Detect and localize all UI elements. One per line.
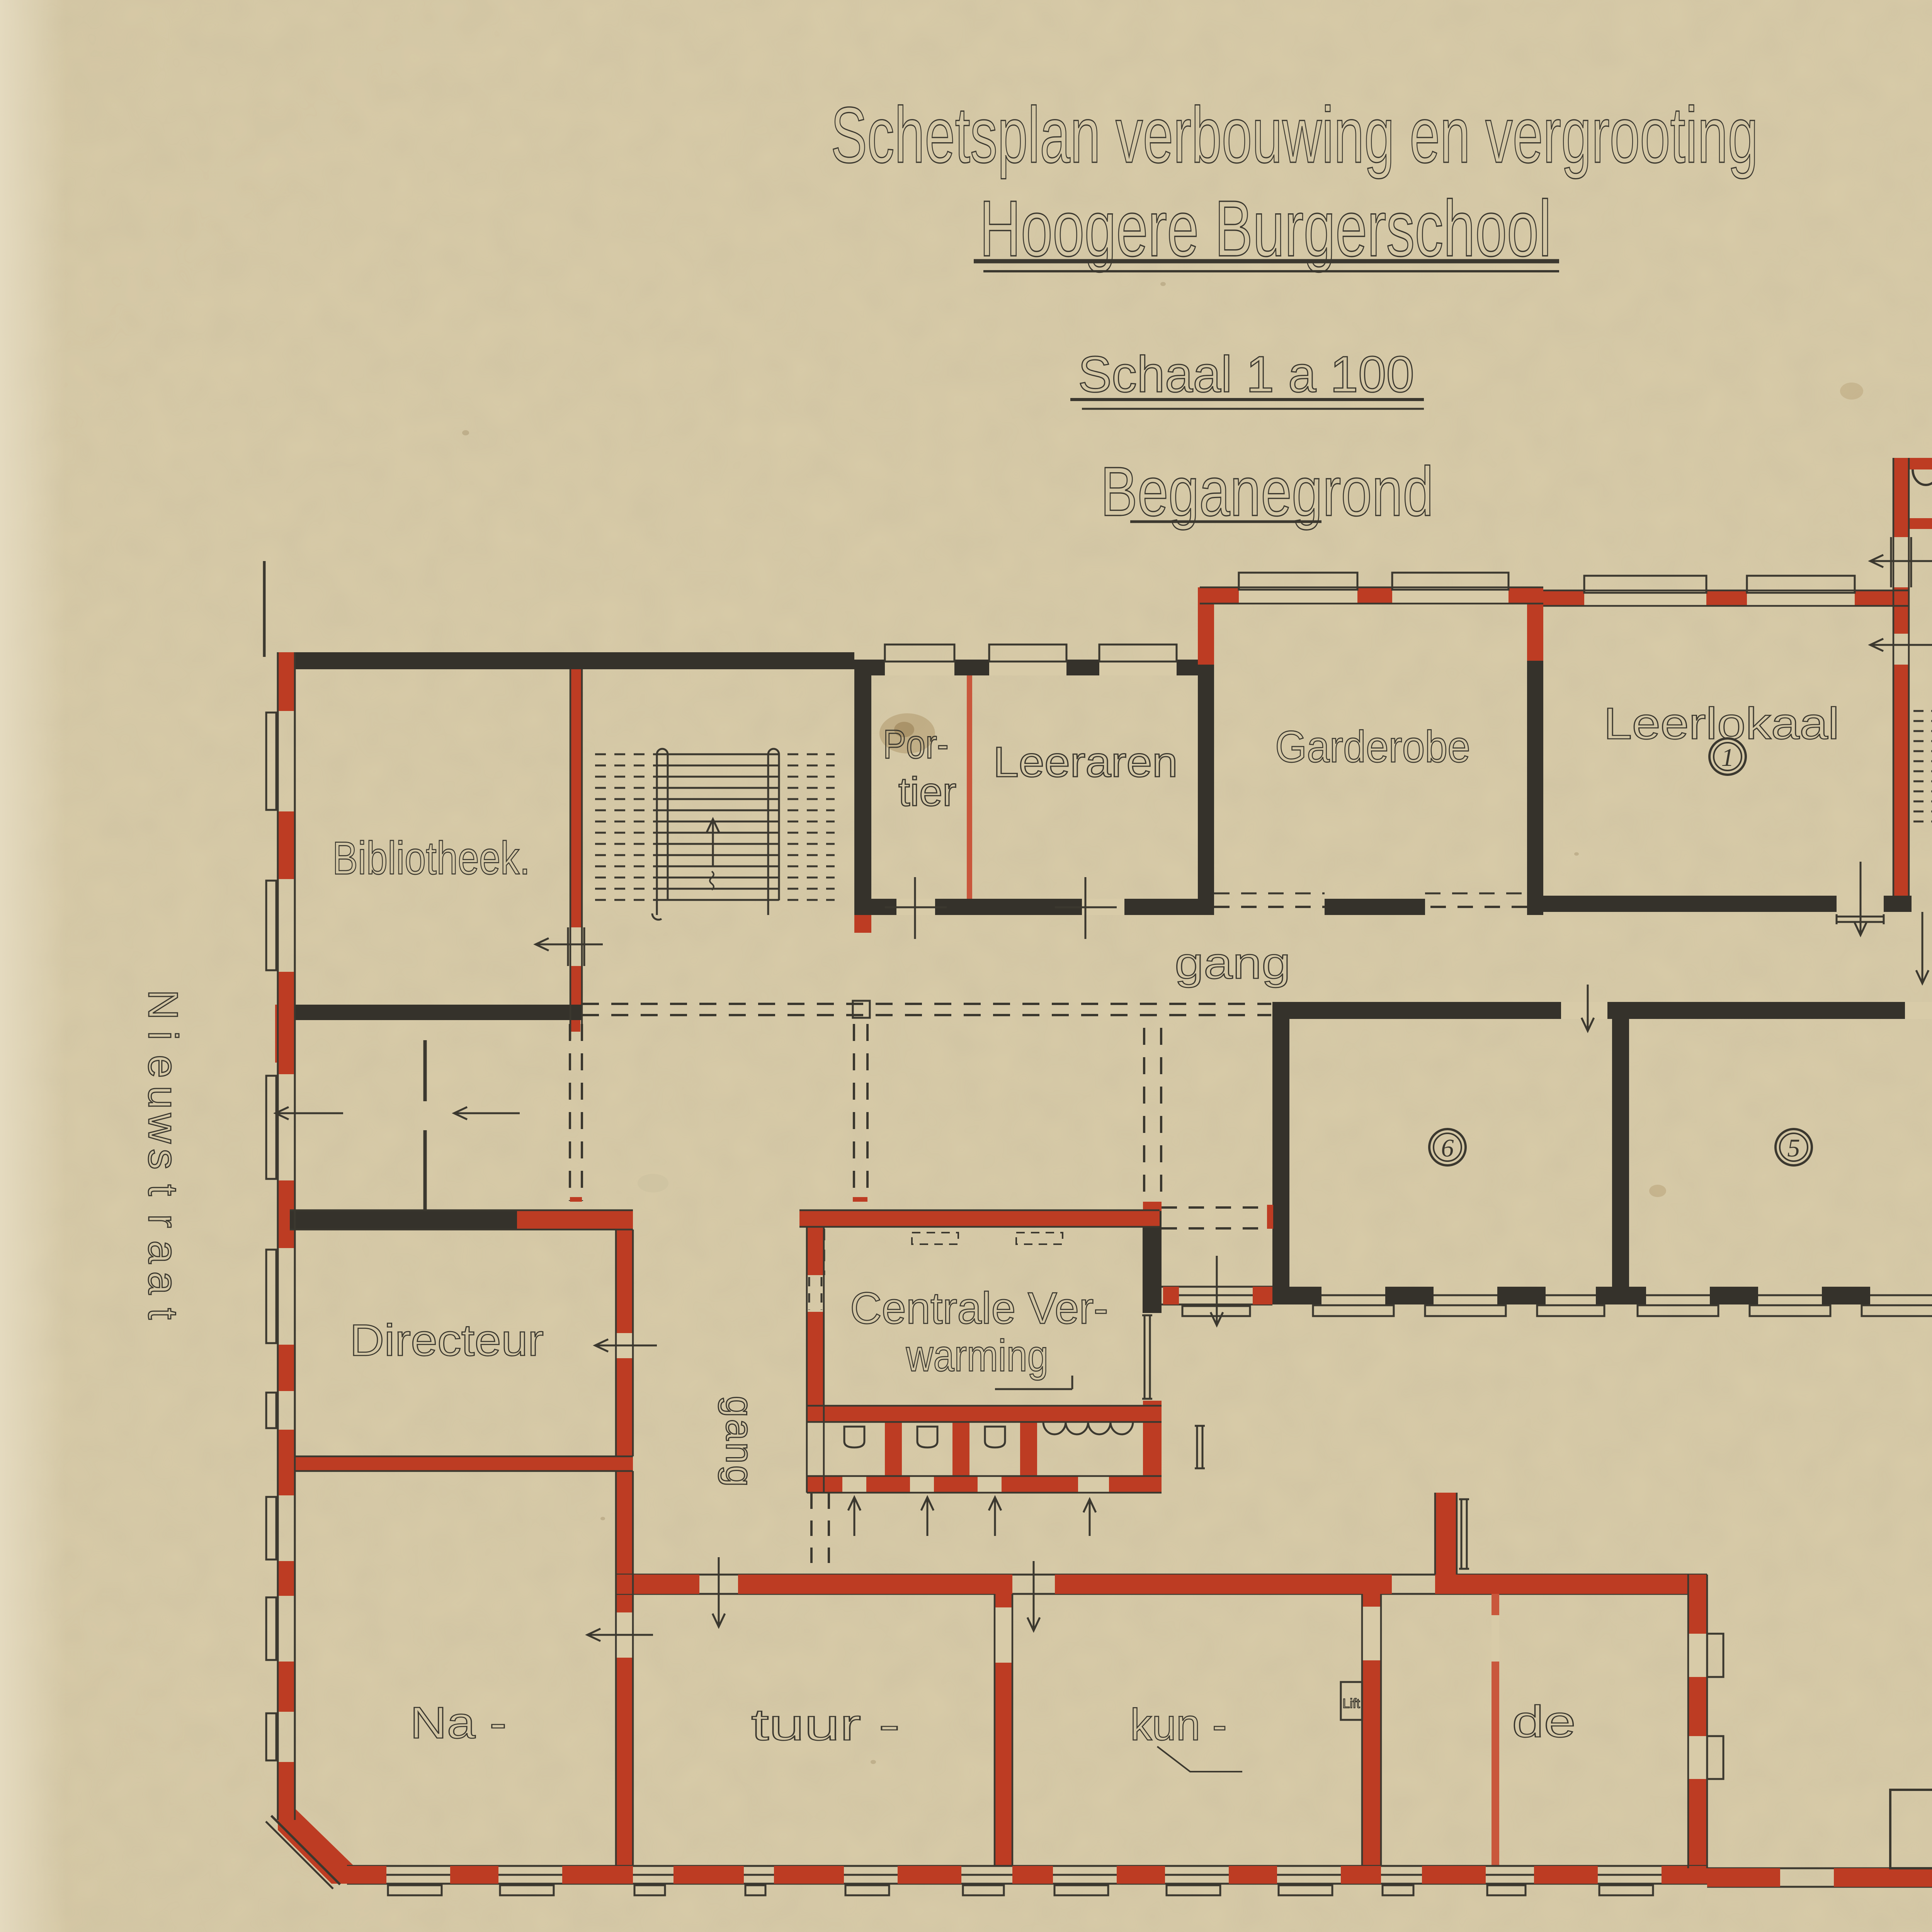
svg-text:Bibliotheek.: Bibliotheek.: [332, 832, 530, 884]
svg-text:Schetsplan verbouwing en vergr: Schetsplan verbouwing en vergrooting: [831, 91, 1758, 179]
svg-text:a: a: [718, 1419, 761, 1440]
svg-text:a: a: [140, 1271, 187, 1295]
svg-text:1: 1: [1721, 743, 1734, 772]
svg-text:Na -: Na -: [410, 1698, 507, 1748]
svg-text:i: i: [140, 1031, 187, 1040]
svg-text:Centrale Ver-: Centrale Ver-: [850, 1284, 1108, 1333]
svg-text:tier: tier: [898, 769, 956, 815]
svg-text:s: s: [140, 1149, 187, 1170]
svg-text:Beganegrond: Beganegrond: [1100, 453, 1434, 531]
svg-text:Leeraren: Leeraren: [993, 738, 1178, 786]
svg-text:gang: gang: [1175, 939, 1291, 988]
svg-text:a: a: [140, 1240, 187, 1264]
svg-text:w: w: [140, 1113, 187, 1144]
svg-text:r: r: [140, 1214, 187, 1228]
svg-text:Directeur: Directeur: [350, 1316, 544, 1365]
svg-text:e: e: [140, 1055, 187, 1078]
svg-text:g: g: [718, 1465, 761, 1487]
svg-text:N: N: [140, 990, 187, 1020]
svg-text:de: de: [1512, 1697, 1576, 1747]
svg-text:kun -: kun -: [1130, 1700, 1227, 1750]
svg-text:u: u: [140, 1086, 187, 1109]
svg-text:6: 6: [1441, 1134, 1454, 1162]
svg-text:Leerlokaal: Leerlokaal: [1604, 699, 1839, 748]
svg-text:Por-: Por-: [883, 722, 949, 767]
svg-text:warming: warming: [906, 1331, 1048, 1381]
svg-text:5: 5: [1787, 1134, 1800, 1162]
svg-text:t: t: [140, 1308, 187, 1320]
svg-text:n: n: [718, 1442, 761, 1464]
svg-text:Garderobe: Garderobe: [1275, 722, 1470, 772]
svg-text:t: t: [140, 1184, 187, 1196]
svg-text:Schaal 1 a 100: Schaal 1 a 100: [1078, 346, 1414, 403]
svg-text:Lift: Lift: [1342, 1696, 1360, 1711]
svg-text:g: g: [718, 1396, 761, 1417]
svg-text:tuur -: tuur -: [751, 1700, 900, 1750]
